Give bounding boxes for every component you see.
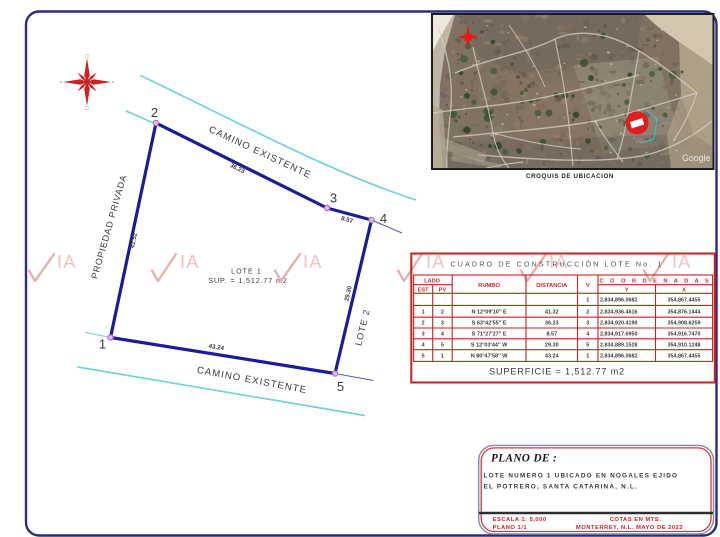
svg-text:IA: IA (57, 251, 76, 272)
svg-text:4: 4 (380, 211, 387, 226)
svg-text:CAMINO EXISTENTE: CAMINO EXISTENTE (196, 365, 308, 396)
svg-text:Y: Y (625, 288, 629, 294)
svg-text:SUP. = 1,512.77 m2: SUP. = 1,512.77 m2 (208, 276, 287, 285)
svg-text:3: 3 (422, 332, 425, 338)
svg-text:EST: EST (418, 288, 429, 294)
svg-text:COTAS EN MTS.: COTAS EN MTS. (610, 517, 661, 523)
svg-text:PV: PV (439, 288, 447, 294)
svg-text:5: 5 (586, 342, 589, 348)
svg-text:Google: Google (682, 153, 710, 163)
svg-text:2,834,920.4190: 2,834,920.4190 (600, 321, 637, 327)
svg-text:N 12°09′10″ E: N 12°09′10″ E (471, 309, 507, 315)
svg-text:N 80°47′58″ W: N 80°47′58″ W (471, 354, 509, 360)
svg-text:4: 4 (586, 332, 590, 338)
svg-text:43.24: 43.24 (208, 343, 225, 352)
svg-text:8.57: 8.57 (340, 215, 354, 225)
svg-text:2: 2 (441, 309, 444, 315)
svg-text:2,834,896.0682: 2,834,896.0682 (600, 354, 637, 360)
svg-text:1: 1 (586, 354, 589, 360)
svg-text:ESCALA 1: 5,000: ESCALA 1: 5,000 (493, 517, 547, 523)
svg-text:SUPERFICIE = 1,512.77 m2: SUPERFICIE = 1,512.77 m2 (489, 367, 625, 377)
svg-text:8.57: 8.57 (546, 332, 557, 338)
svg-text:DISTANCIA: DISTANCIA (536, 283, 568, 289)
svg-text:5: 5 (441, 342, 444, 348)
svg-text:C O O R D E N A D A S: C O O R D E N A D A S (599, 279, 711, 285)
svg-text:RUMBO: RUMBO (478, 283, 500, 289)
svg-text:CROQUIS DE UBICACION: CROQUIS DE UBICACION (526, 173, 614, 180)
svg-text:4: 4 (422, 342, 426, 348)
svg-text:EL POTRERO, SANTA CATARINA, N.: EL POTRERO, SANTA CATARINA, N.L. (484, 484, 639, 491)
svg-text:LOTE 1: LOTE 1 (231, 269, 262, 276)
svg-text:S 63°42′55″ E: S 63°42′55″ E (472, 321, 507, 327)
svg-text:MONTERREY, N.L. MAYO DE 2: MONTERREY, N.L. MAYO DE 2022 (576, 525, 683, 531)
svg-text:36.23: 36.23 (545, 321, 559, 327)
svg-text:354,876.1444: 354,876.1444 (668, 309, 701, 315)
svg-text:354,910.1248: 354,910.1248 (668, 342, 701, 348)
svg-text:LADO: LADO (424, 279, 440, 285)
svg-text:5: 5 (422, 354, 425, 360)
svg-text:1: 1 (422, 309, 425, 315)
svg-text:2: 2 (586, 309, 589, 315)
svg-text:PLANO 1/1: PLANO 1/1 (493, 525, 528, 531)
svg-text:354,916.7470: 354,916.7470 (668, 332, 701, 338)
svg-text:354,867.4455: 354,867.4455 (668, 354, 701, 360)
svg-text:2,834,936.4616: 2,834,936.4616 (600, 309, 637, 315)
svg-text:1: 1 (586, 298, 589, 304)
svg-text:3: 3 (586, 321, 589, 327)
svg-text:PROPIEDAD PRIVADA: PROPIEDAD PRIVADA (89, 173, 128, 280)
svg-text:CAMINO EXISTENTE: CAMINO EXISTENTE (207, 124, 313, 181)
svg-text:43.24: 43.24 (545, 354, 560, 360)
svg-text:CUADRO DE CONSTRUCCIÓN LOTE: CUADRO DE CONSTRUCCIÓN LOTE No. 1 (450, 260, 663, 269)
svg-text:2: 2 (422, 321, 425, 327)
svg-text:2: 2 (151, 105, 158, 120)
svg-text:2,834,917.6950: 2,834,917.6950 (600, 332, 637, 338)
svg-text:2,834,889.1528: 2,834,889.1528 (600, 342, 637, 348)
svg-text:41.32: 41.32 (545, 309, 559, 315)
svg-text:3: 3 (441, 321, 444, 327)
svg-text:36.23: 36.23 (229, 162, 246, 175)
svg-text:IA: IA (180, 251, 199, 272)
svg-text:29.30: 29.30 (545, 342, 559, 348)
svg-text:S 12°03′44″ W: S 12°03′44″ W (471, 342, 508, 348)
svg-text:LOTE 2: LOTE 2 (353, 308, 372, 347)
svg-text:41.52: 41.52 (129, 232, 139, 249)
svg-text:IA: IA (303, 251, 322, 272)
svg-text:LOTE NUMERO 1 UBICADO EN NOGAL: LOTE NUMERO 1 UBICADO EN NOGALES EJIDO (484, 473, 679, 480)
svg-text:S 71°27′27″ E: S 71°27′27″ E (472, 332, 507, 338)
svg-text:V: V (586, 283, 590, 289)
svg-text:3: 3 (330, 191, 337, 206)
svg-text:354,867.4455: 354,867.4455 (668, 298, 701, 304)
svg-text:4: 4 (441, 332, 445, 338)
svg-text:X: X (682, 288, 686, 294)
svg-text:1: 1 (99, 337, 106, 352)
svg-text:5: 5 (337, 379, 344, 394)
svg-text:PLANO DE :: PLANO DE : (491, 453, 557, 465)
svg-text:2,834,896.0682: 2,834,896.0682 (600, 298, 637, 304)
svg-text:1: 1 (441, 354, 444, 360)
svg-text:354,908.6259: 354,908.6259 (668, 321, 701, 327)
